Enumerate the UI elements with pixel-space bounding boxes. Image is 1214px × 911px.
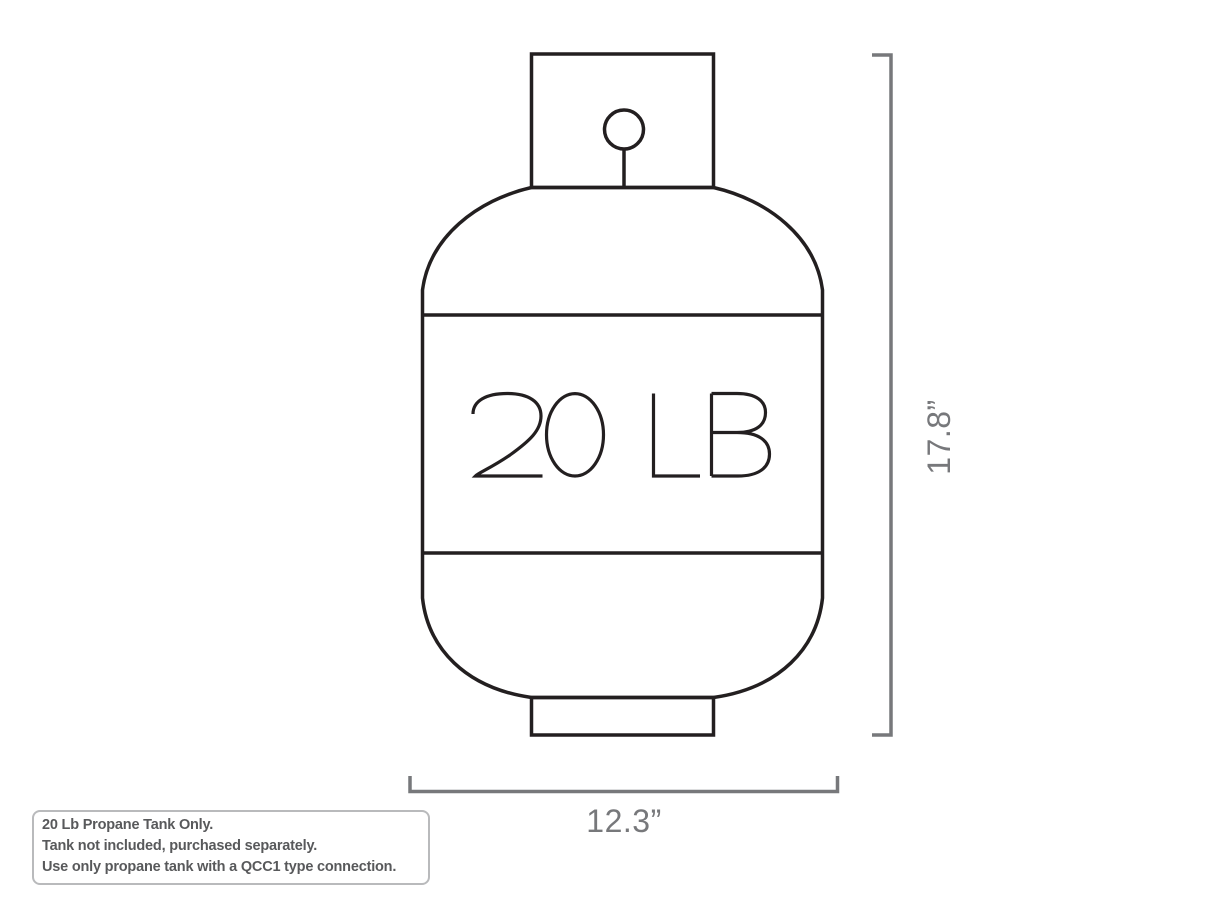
width-dimension-bracket — [410, 776, 838, 792]
glyph-L — [654, 394, 701, 477]
tank-weight-label-text: 20 LB — [470, 377, 757, 500]
height-dimension-label: 17.8” — [921, 399, 957, 474]
dimension-annotations: 17.8” 12.3” — [410, 55, 957, 839]
height-dimension-bracket — [872, 55, 891, 735]
diagram-drawing: 20 LB 17.8” 12.3” — [0, 0, 1214, 911]
valve-knob-icon — [605, 110, 644, 149]
tank-body — [423, 188, 823, 698]
width-dimension-label: 12.3” — [586, 803, 661, 839]
note-line-1: 20 Lb Propane Tank Only. — [42, 815, 420, 836]
note-box: 20 Lb Propane Tank Only. Tank not includ… — [32, 810, 430, 885]
tank-weight-label: 20 LB — [470, 377, 770, 500]
propane-tank-size-diagram: 20 LB 17.8” 12.3” 20 Lb Propane Tank Onl… — [0, 0, 1214, 911]
tank-outline — [423, 54, 823, 735]
glyph-0 — [547, 394, 604, 476]
foot-ring — [532, 698, 714, 736]
glyph-2 — [473, 394, 543, 477]
glyph-B — [712, 394, 770, 477]
note-line-2: Tank not included, purchased separately. — [42, 836, 420, 857]
note-line-3: Use only propane tank with a QCC1 type c… — [42, 857, 420, 878]
